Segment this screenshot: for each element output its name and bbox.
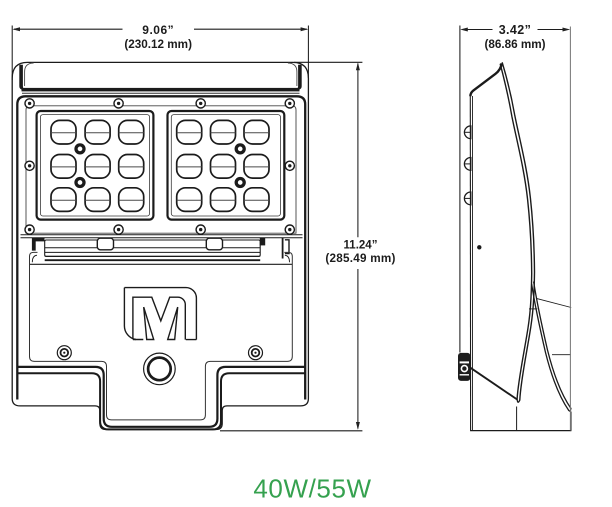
svg-text:(230.12 mm): (230.12 mm) bbox=[124, 38, 192, 51]
svg-text:(86.86 mm): (86.86 mm) bbox=[484, 38, 545, 51]
svg-text:(285.49 mm): (285.49 mm) bbox=[325, 252, 395, 265]
svg-text:3.42”: 3.42” bbox=[499, 23, 532, 37]
svg-text:11.24”: 11.24” bbox=[344, 239, 378, 251]
svg-text:40W/55W: 40W/55W bbox=[253, 474, 371, 504]
svg-text:9.06”: 9.06” bbox=[142, 23, 174, 37]
